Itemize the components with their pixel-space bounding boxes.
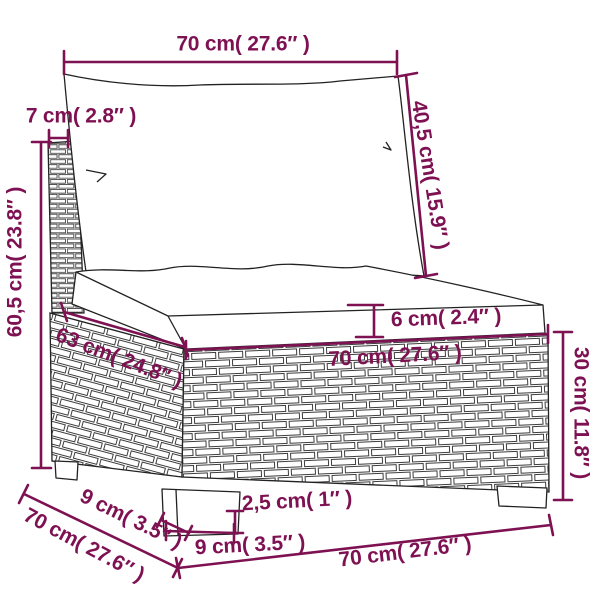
dim-label-foot-height: 2,5 cm( 1″ ) — [241, 488, 352, 515]
front-right-foot — [497, 486, 547, 508]
dim-total-height-line — [32, 142, 51, 468]
dim-label-foot-front-width: 9 cm( 3.5″ ) — [194, 532, 305, 559]
dim-label-base-height: 30 cm( 11.8″ ) — [571, 347, 592, 479]
dim-label-total-height: 60,5 cm( 23.8″ ) — [5, 187, 26, 337]
product-diagram: 70 cm( 27.6″ ) 40,5 cm( 15.9″ ) 7 cm( 2.… — [0, 0, 600, 600]
dim-label-back-panel-thickness: 7 cm( 2.8″ ) — [26, 106, 136, 127]
dim-label-seat-cushion-thickness: 6 cm( 2.4″ ) — [390, 306, 501, 331]
back-left-foot — [55, 461, 78, 480]
dim-label-top-width: 70 cm( 27.6″ ) — [176, 34, 309, 55]
